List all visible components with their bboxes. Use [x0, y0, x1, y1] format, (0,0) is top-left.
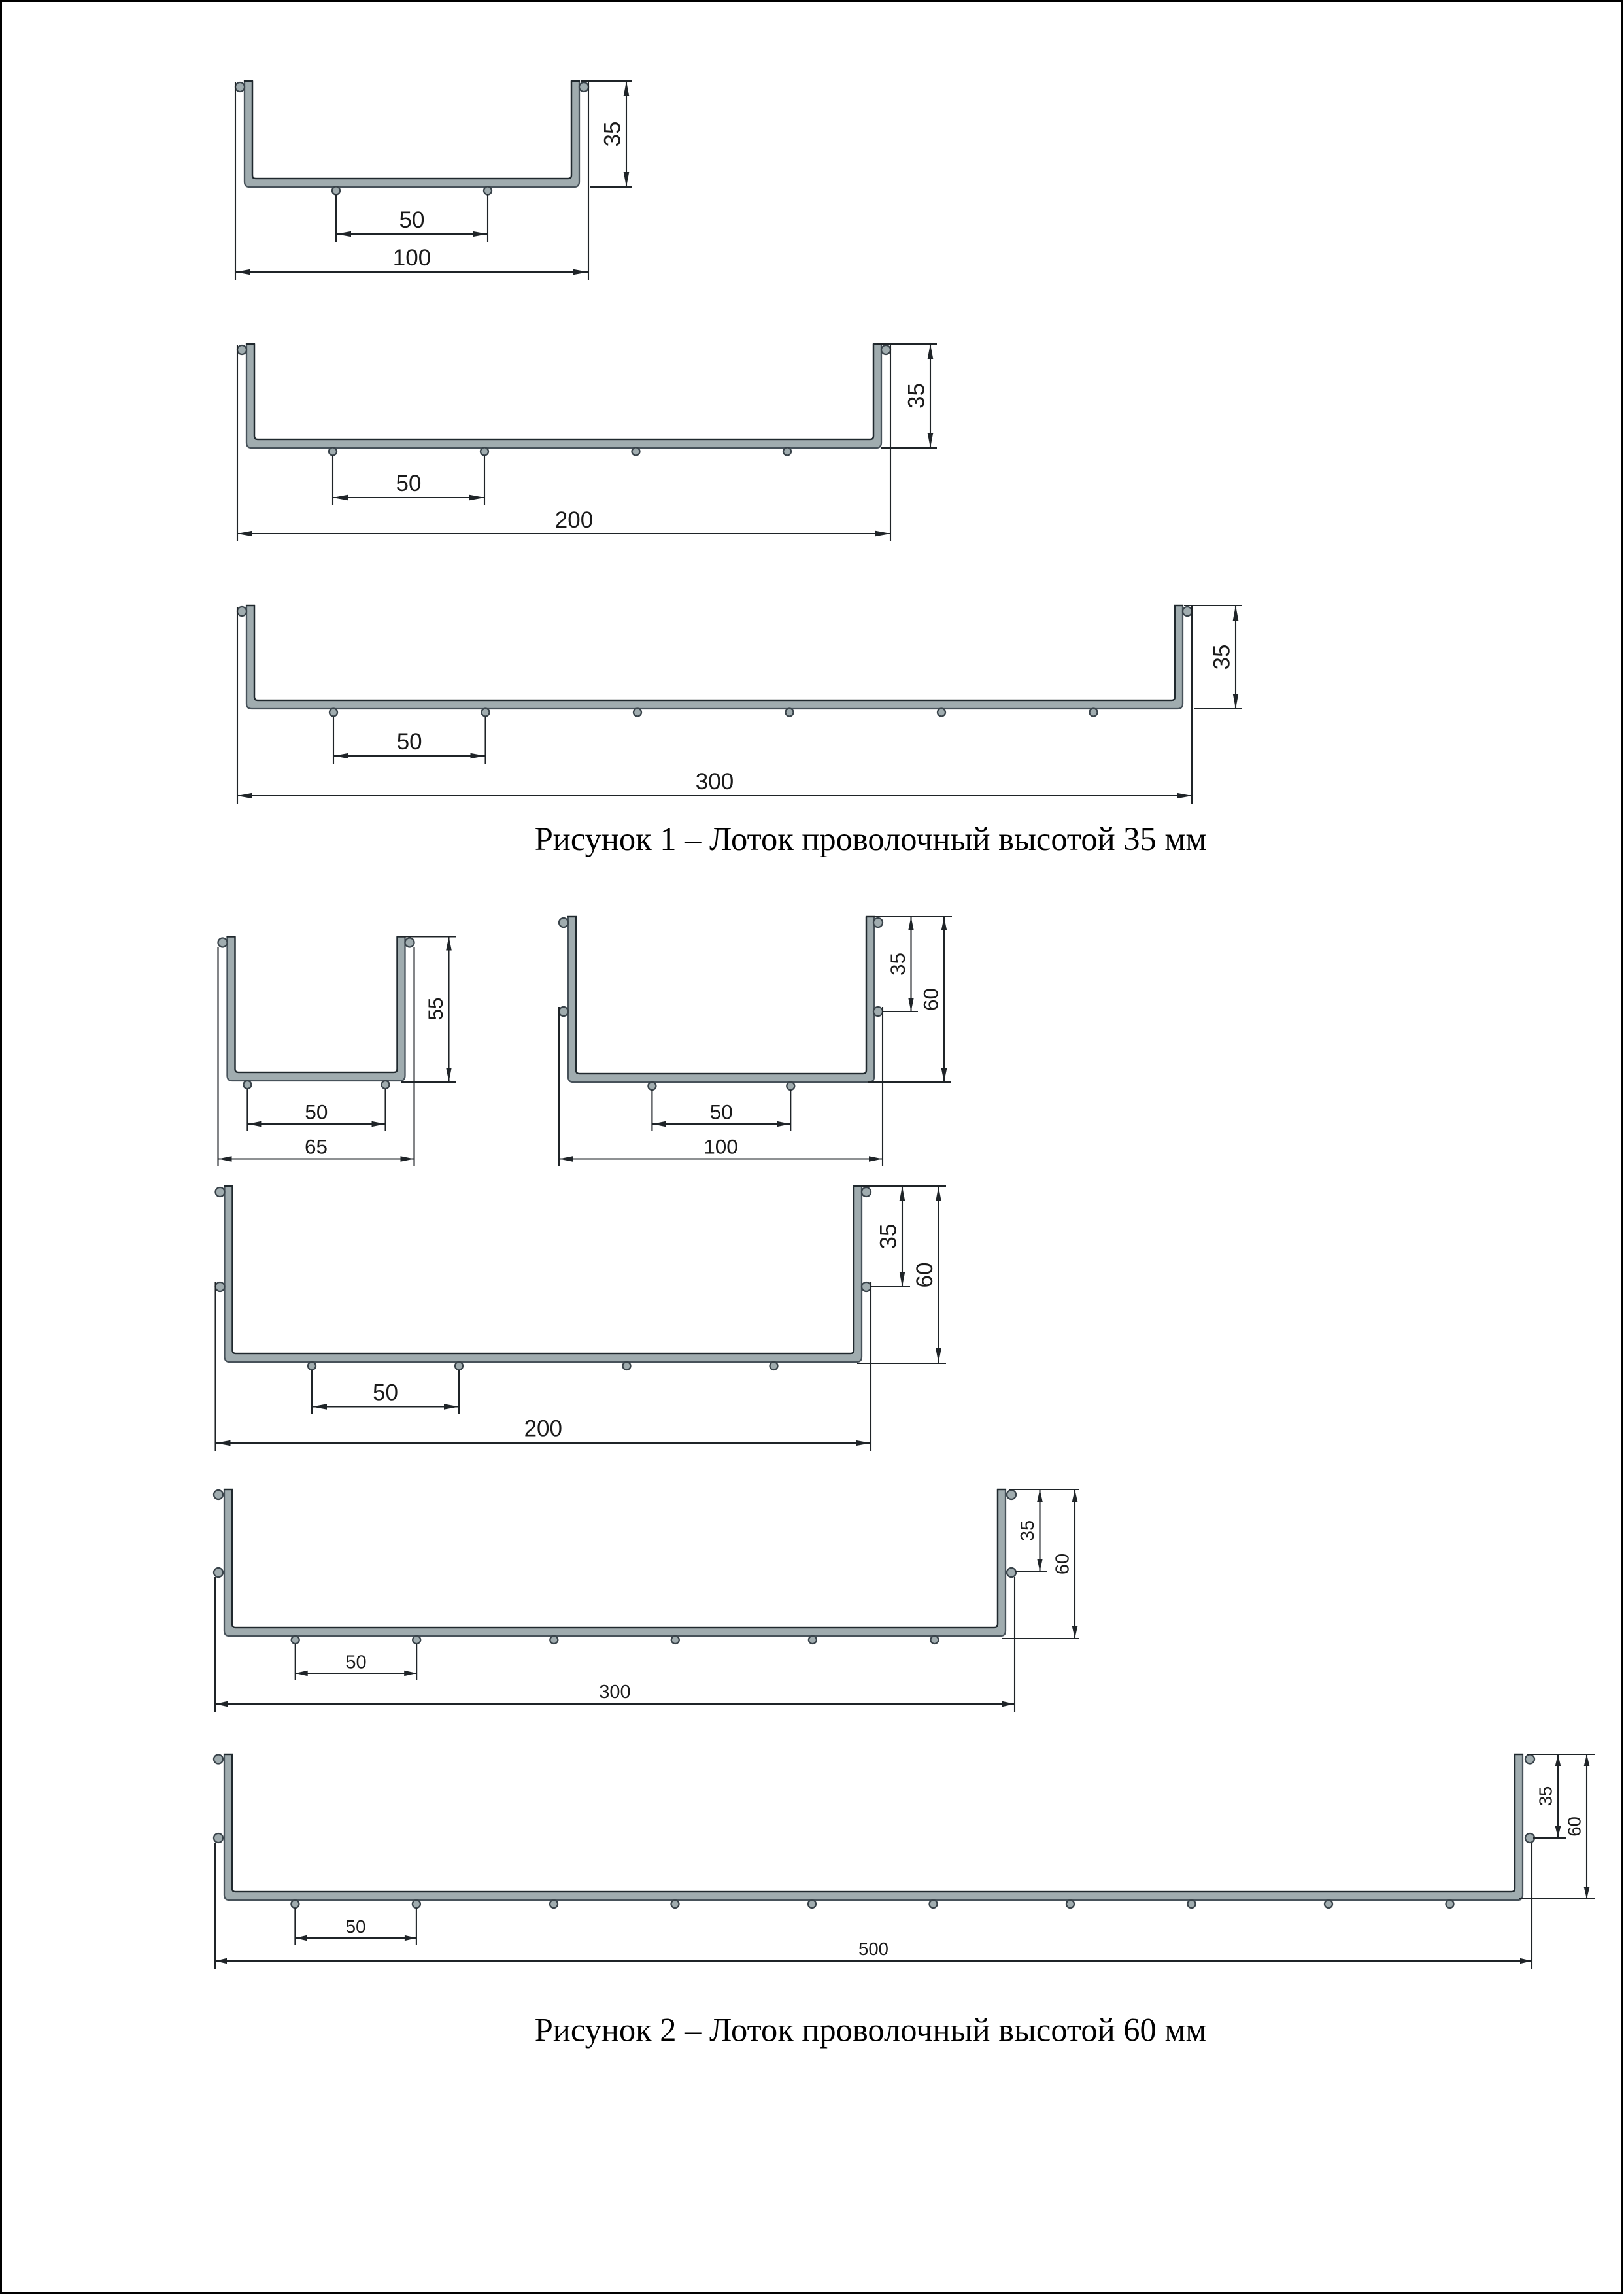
- svg-text:50: 50: [373, 1380, 398, 1406]
- svg-text:35: 35: [1210, 645, 1235, 670]
- svg-text:60: 60: [919, 988, 943, 1011]
- svg-text:Рисунок 1 – Лоток проволочный: Рисунок 1 – Лоток проволочный высотой 35…: [535, 821, 1207, 857]
- svg-text:50: 50: [345, 1652, 366, 1673]
- svg-text:35: 35: [904, 383, 930, 409]
- svg-text:50: 50: [397, 729, 422, 755]
- svg-text:Рисунок 2 – Лоток проволочный: Рисунок 2 – Лоток проволочный высотой 60…: [535, 2012, 1207, 2048]
- svg-text:50: 50: [305, 1100, 328, 1124]
- svg-text:100: 100: [703, 1135, 738, 1159]
- svg-text:60: 60: [1053, 1554, 1074, 1574]
- svg-text:300: 300: [599, 1682, 630, 1703]
- svg-text:65: 65: [305, 1135, 328, 1159]
- svg-text:35: 35: [1536, 1786, 1556, 1807]
- svg-text:50: 50: [346, 1916, 366, 1937]
- svg-text:55: 55: [424, 997, 447, 1020]
- svg-text:60: 60: [1565, 1816, 1585, 1837]
- svg-text:500: 500: [858, 1939, 888, 1959]
- svg-text:50: 50: [399, 207, 425, 233]
- svg-text:35: 35: [1017, 1520, 1038, 1541]
- svg-text:60: 60: [912, 1263, 938, 1288]
- svg-text:200: 200: [555, 507, 593, 533]
- svg-text:35: 35: [886, 953, 909, 976]
- svg-text:100: 100: [393, 245, 431, 271]
- svg-text:35: 35: [876, 1224, 902, 1249]
- svg-text:300: 300: [696, 769, 734, 794]
- svg-text:200: 200: [524, 1416, 562, 1442]
- svg-text:35: 35: [600, 122, 626, 147]
- svg-text:50: 50: [396, 471, 422, 496]
- svg-text:50: 50: [710, 1100, 733, 1124]
